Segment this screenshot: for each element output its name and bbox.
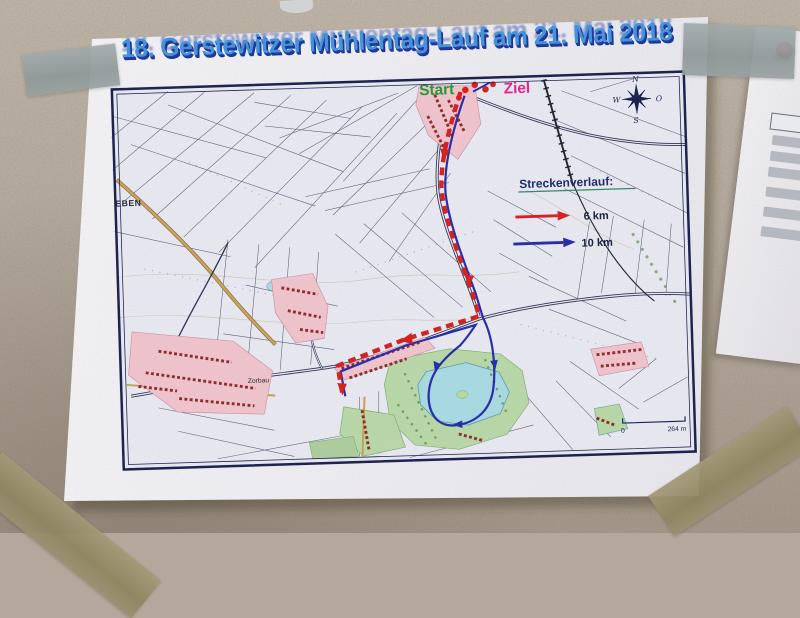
poster-paper: 18. Gerstewitzer Mühlentag-Lauf am 21. M… bbox=[0, 0, 800, 533]
compass-w: W bbox=[612, 95, 621, 104]
compass-s: S bbox=[633, 116, 639, 125]
compass-o: O bbox=[656, 94, 663, 103]
course-map: EBEN Zorbau N O S W Streckenverlauf: 6 k… bbox=[110, 62, 698, 480]
scale-max: 264 m bbox=[668, 426, 687, 434]
compass-n: N bbox=[631, 75, 639, 84]
legend-6km-arrow bbox=[515, 216, 557, 217]
legend-10km-label: 10 km bbox=[581, 237, 613, 250]
scale-zero: 0 bbox=[621, 428, 625, 435]
legend-10km-arrow bbox=[513, 242, 563, 244]
poster-content: 18. Gerstewitzer Mühlentag-Lauf am 21. M… bbox=[98, 9, 709, 505]
tape-top-right bbox=[682, 23, 796, 79]
label-zorbau: Zorbau bbox=[248, 377, 270, 385]
legend-6km-label: 6 km bbox=[583, 210, 609, 223]
legend-heading: Streckenverlauf: bbox=[519, 174, 613, 191]
label-eben: EBEN bbox=[115, 198, 141, 209]
ziel-label: Ziel bbox=[503, 80, 530, 98]
